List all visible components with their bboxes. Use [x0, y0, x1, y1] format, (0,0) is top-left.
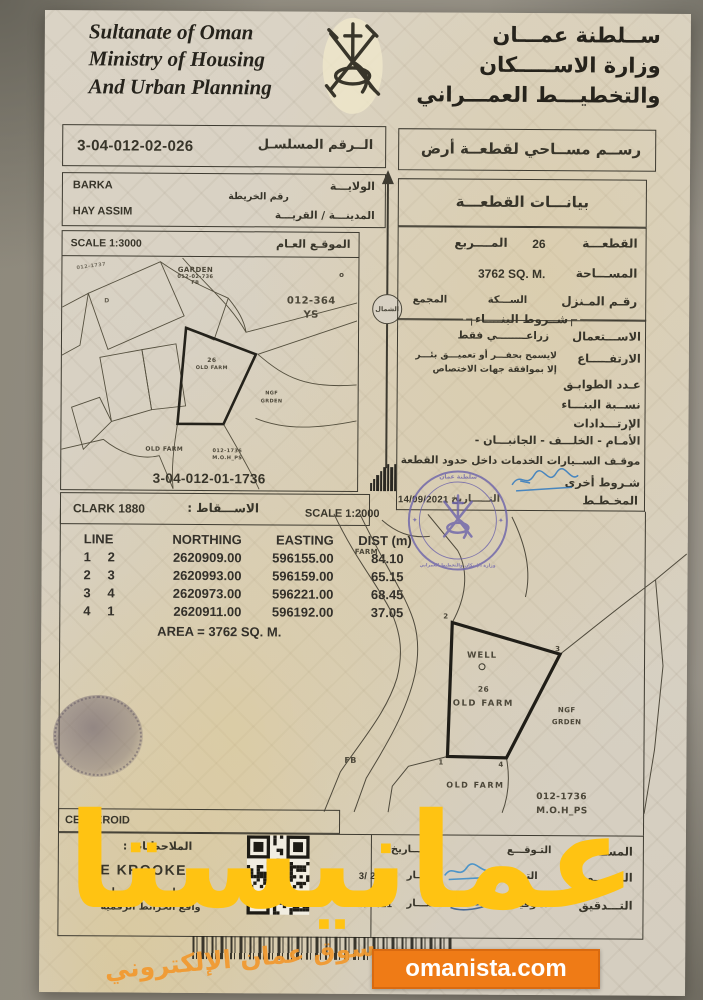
old-farm-label: OLD FARM: [453, 699, 514, 709]
embossed-seal: [53, 695, 143, 777]
stamp-star-right-icon: ✦: [498, 517, 504, 525]
ministry-stamp: سلطنة عمان وزارة الإسكان والتخطيط العمرا…: [408, 470, 509, 571]
vertex-1: 1: [438, 758, 443, 766]
stamp-emblem-icon: [437, 490, 479, 552]
vertex-2: 2: [443, 612, 448, 620]
farm-label: FARM: [355, 548, 378, 556]
vertex-3: 3: [555, 645, 560, 653]
stamp-top-text: سلطنة عمان: [408, 473, 508, 481]
fb-label: FB: [344, 756, 356, 765]
omanista-link[interactable]: omanista.com: [372, 949, 600, 989]
stamp-star-left-icon: ✦: [412, 516, 418, 524]
well-label: WELL: [467, 651, 497, 661]
vertex-4: 4: [498, 761, 503, 769]
omanista-url: omanista.com: [405, 955, 566, 983]
ngf-grden-label: NGF GRDEN: [545, 705, 589, 729]
ngf-line2: GRDEN: [545, 717, 589, 729]
watermark-omanista-arabic: عمانيستا: [52, 796, 652, 928]
ngf-line1: NGF: [545, 705, 589, 717]
plot-number-label: 26: [478, 685, 489, 694]
photo-backdrop: Sultanate of Oman Ministry of Housing An…: [0, 0, 703, 1000]
stamp-bottom-text: وزارة الإسكان والتخطيط العمراني: [412, 563, 504, 569]
